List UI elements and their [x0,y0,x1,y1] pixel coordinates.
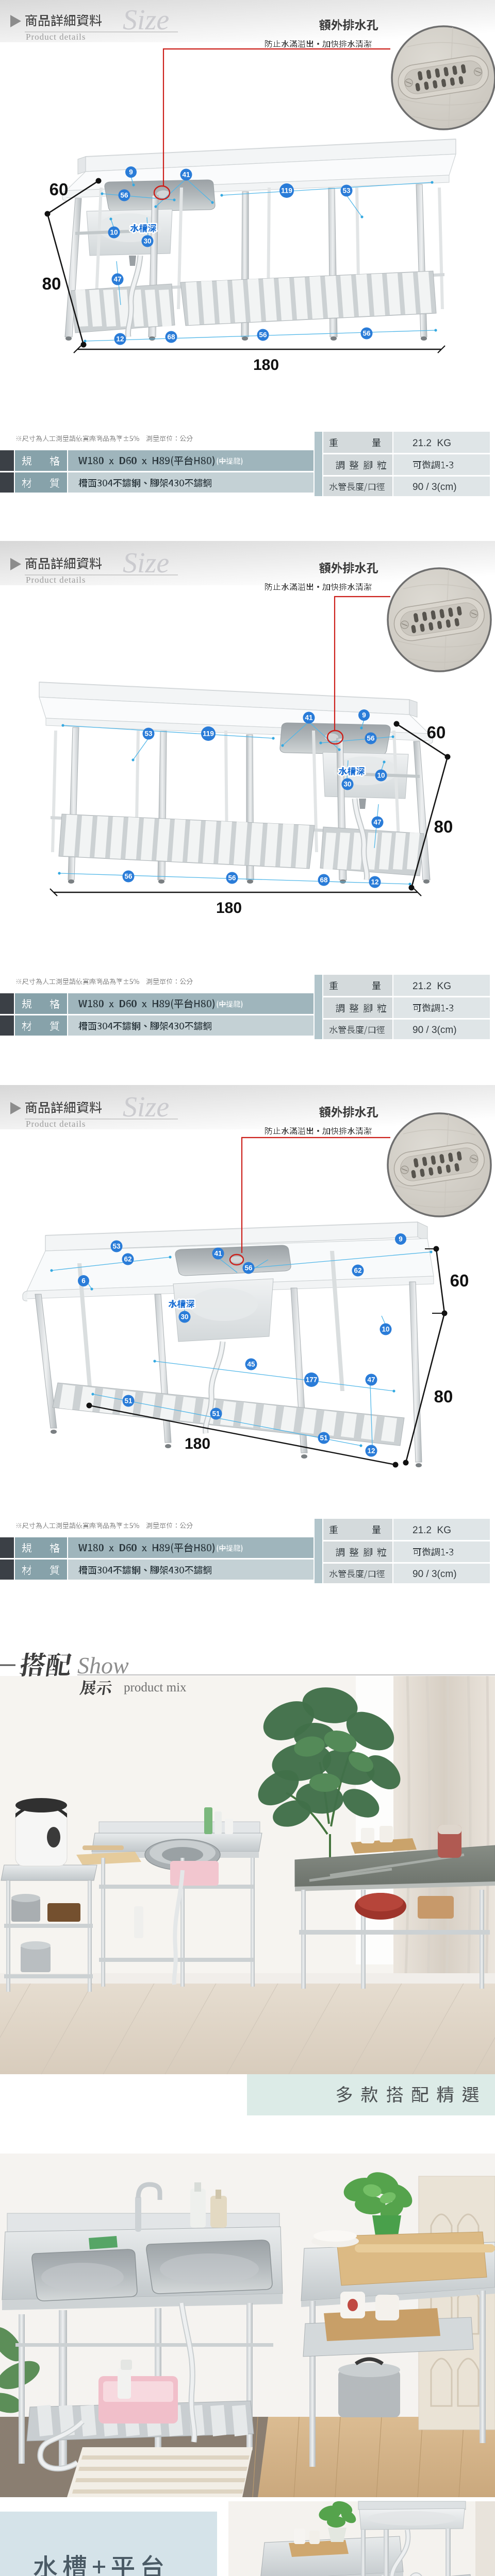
svg-text:62: 62 [124,1256,131,1263]
svg-text:Product details: Product details [26,575,86,585]
svg-text:56: 56 [367,735,375,742]
svg-text:68: 68 [320,876,328,884]
svg-text:Show: Show [77,1652,129,1679]
svg-text:45: 45 [247,1361,255,1368]
svg-text:68: 68 [167,333,175,341]
svg-text:10: 10 [110,229,118,236]
svg-text:product mix: product mix [124,1681,187,1694]
svg-text:Size: Size [123,547,169,579]
svg-text:60: 60 [49,180,69,199]
svg-text:41: 41 [214,1250,222,1258]
svg-text:80: 80 [434,817,453,836]
svg-text:47: 47 [367,1376,375,1384]
svg-text:41: 41 [182,171,190,179]
svg-text:21.2 KG: 21.2 KG [412,438,451,449]
svg-text:Product details: Product details [26,1119,86,1129]
svg-text:41: 41 [305,714,313,722]
svg-text:47: 47 [373,819,381,826]
svg-text:180: 180 [253,357,279,374]
svg-text:90 / 3(cm): 90 / 3(cm) [412,1025,457,1036]
svg-text:30: 30 [343,781,351,788]
svg-text:119: 119 [203,730,214,738]
svg-text:12: 12 [371,878,378,886]
svg-text:53: 53 [144,730,153,738]
svg-text:10: 10 [382,1326,389,1333]
svg-text:21.2 KG: 21.2 KG [412,981,451,992]
svg-text:60: 60 [427,723,446,742]
svg-text:12: 12 [367,1447,375,1455]
svg-text:30: 30 [180,1313,188,1321]
svg-text:62: 62 [354,1267,361,1275]
svg-text:21.2 KG: 21.2 KG [412,1525,451,1536]
svg-text:177: 177 [306,1376,318,1384]
svg-text:51: 51 [212,1410,220,1418]
svg-text:90 / 3(cm): 90 / 3(cm) [412,482,457,493]
svg-text:30: 30 [143,238,151,245]
svg-text:9: 9 [129,168,133,176]
svg-text:10: 10 [377,772,385,779]
svg-text:9: 9 [362,711,366,719]
svg-text:56: 56 [120,192,128,199]
svg-text:12: 12 [116,335,124,343]
svg-text:56: 56 [259,331,267,339]
svg-text:51: 51 [320,1434,328,1442]
svg-text:119: 119 [281,187,292,195]
svg-text:56: 56 [228,874,236,882]
svg-text:47: 47 [113,276,121,283]
svg-text:180: 180 [185,1435,210,1452]
svg-text:90 / 3(cm): 90 / 3(cm) [412,1569,457,1580]
svg-text:80: 80 [42,274,61,293]
svg-text:56: 56 [124,873,133,880]
svg-text:56: 56 [362,330,371,337]
svg-text:80: 80 [434,1387,453,1406]
svg-text:6: 6 [81,1277,86,1285]
svg-text:53: 53 [112,1243,121,1250]
svg-text:53: 53 [342,187,351,195]
svg-text:56: 56 [244,1264,253,1272]
svg-text:Size: Size [123,1091,169,1123]
svg-text:51: 51 [124,1397,133,1405]
svg-text:180: 180 [216,900,242,917]
svg-text:Product details: Product details [26,32,86,42]
svg-text:Size: Size [123,4,169,36]
svg-text:9: 9 [399,1235,403,1243]
svg-text:60: 60 [450,1271,469,1290]
